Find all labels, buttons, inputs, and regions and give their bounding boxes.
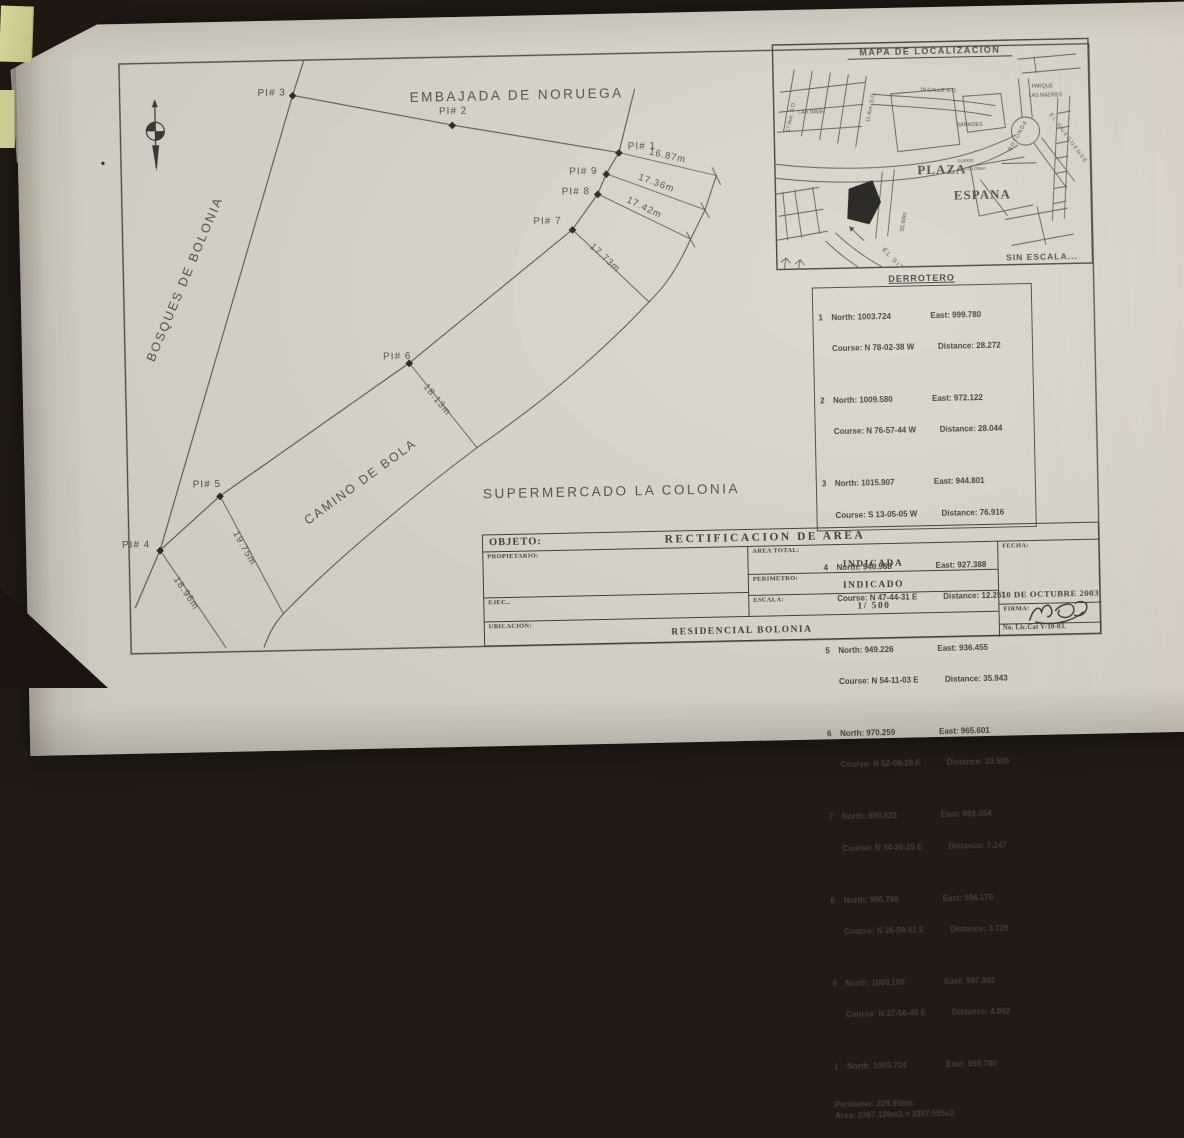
objeto-label: OBJETO:: [489, 536, 542, 548]
svg-text:LA COLONIA: LA COLONIA: [957, 166, 986, 173]
derrotero-box: 1North: 1003.724East: 999.780 Course: N …: [812, 283, 1037, 532]
svg-text:ESPANA: ESPANA: [954, 186, 1011, 202]
map-no-scale: SIN ESCALA...: [1006, 251, 1078, 262]
svg-text:PARQUE: PARQUE: [1032, 83, 1054, 89]
svg-text:PI# 9: PI# 9: [569, 166, 598, 178]
propietario-label: PROPIETARIO:: [487, 552, 538, 560]
svg-text:17.36m: 17.36m: [637, 172, 676, 195]
derrotero-row: 2North: 1009.580East: 972.122 Course: N …: [820, 371, 1030, 459]
svg-text:PI# 4: PI# 4: [122, 539, 151, 551]
titleblock-lic-cell: No. Lic.Cat V-10-03.: [1000, 623, 1102, 637]
svg-text:EL GUEGUENSE: EL GUEGUENSE: [1048, 112, 1089, 165]
svg-text:55.60m: 55.60m: [900, 212, 909, 232]
titleblock-firma-cell: FIRMA:: [999, 603, 1101, 625]
svg-text:PI# 5: PI# 5: [193, 479, 222, 491]
area-total-label: AREA TOTAL:: [752, 547, 799, 555]
titleblock-propietario-cell: PROPIETARIO:: [483, 547, 749, 599]
location-map: MAPA DE LOCALIZACION: [772, 38, 1094, 271]
escala-value: 1/ 500: [749, 599, 998, 614]
svg-text:CAR WASH: CAR WASH: [798, 109, 825, 116]
svg-text:ROTONDA: ROTONDA: [1007, 119, 1029, 152]
svg-text:SUPER: SUPER: [957, 158, 974, 164]
label-embassy: EMBAJADA DE NORUEGA: [410, 85, 624, 104]
plan-content: EMBAJADA DE NORUEGA SUPERMERCADO LA COLO…: [23, 0, 1184, 722]
derrotero-row: 7North: 990.822East: 992.054 Course: N 3…: [828, 787, 1038, 875]
svg-text:18.13m: 18.13m: [421, 382, 453, 418]
label-supermercado: SUPERMERCADO LA COLONIA: [483, 481, 740, 501]
tape-strip-top: [0, 5, 34, 62]
derrotero-row: 1North: 1003.724East: 999.780: [834, 1037, 1043, 1093]
lic-value: No. Lic.Cat V-10-03.: [1003, 623, 1066, 631]
svg-text:BANADES: BANADES: [956, 122, 983, 129]
svg-text:PI# 8: PI# 8: [562, 186, 591, 198]
svg-text:18 CALLE S.O.: 18 CALLE S.O.: [920, 87, 958, 94]
map-border: [772, 38, 1092, 269]
svg-text:16.87m: 16.87m: [648, 147, 687, 166]
derrotero-row: 6North: 970.259East: 965.601 Course: N 5…: [827, 704, 1037, 792]
ejec-label: EJEC..: [488, 599, 510, 606]
svg-text:PI# 7: PI# 7: [533, 216, 562, 228]
derrotero-row: 9North: 1000.109East: 997.863 Course: N …: [832, 954, 1042, 1042]
fecha-label: FECHA:: [1002, 542, 1029, 550]
svg-text:17.42m: 17.42m: [625, 195, 664, 221]
derrotero-row: 8North: 996.786East: 996.170 Course: N 2…: [830, 871, 1040, 959]
label-bosques: BOSQUES DE BOLONIA: [144, 194, 226, 363]
title-block: OBJETO: RECTIFICACION DE AREA PROPIETARI…: [482, 522, 1101, 647]
svg-text:PI# 2: PI# 2: [439, 106, 468, 118]
north-arrow-icon: [146, 99, 166, 171]
svg-text:11 Ave. S.O.: 11 Ave. S.O.: [865, 91, 877, 122]
pi-labels: PI# 1 PI# 2 PI# 3 PI# 4 PI# 5 PI# 6 PI# …: [112, 80, 664, 551]
svg-text:17 Ave. S.O.: 17 Ave. S.O.: [786, 101, 798, 133]
svg-text:17.73m: 17.73m: [587, 241, 622, 275]
svg-text:19.75m: 19.75m: [230, 529, 258, 567]
svg-text:LAS MADRES: LAS MADRES: [1029, 92, 1063, 99]
tape-strip-left: [0, 90, 15, 148]
lot-boundary-lines: [124, 53, 645, 608]
svg-text:PI# 6: PI# 6: [383, 351, 412, 363]
svg-text:18.96m: 18.96m: [171, 575, 201, 612]
derrotero-row: 1North: 1003.724East: 999.780 Course: N …: [818, 288, 1028, 376]
label-camino: CAMINO DE BOLA: [302, 436, 420, 527]
svg-text:PI# 3: PI# 3: [257, 88, 286, 100]
survey-plan-sheet: EMBAJADA DE NORUEGA SUPERMERCADO LA COLO…: [15, 2, 1184, 756]
site-polygon: [847, 180, 882, 225]
map-title: MAPA DE LOCALIZACION: [859, 45, 1000, 58]
ubicacion-label: UBICACION:: [489, 622, 532, 630]
derrotero-table: DERROTERO 1North: 1003.724East: 999.780 …: [811, 271, 1036, 532]
